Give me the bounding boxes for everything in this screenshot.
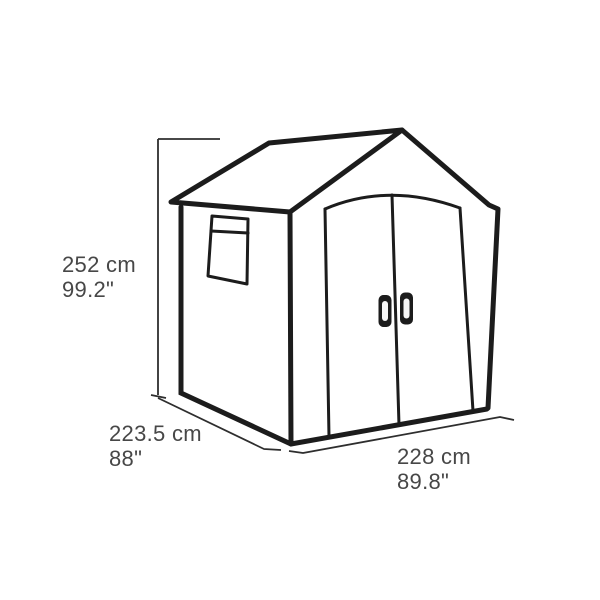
right-door-handle-icon [400,293,413,325]
width-cm-value: 228 cm [397,444,471,469]
width-dimension-label: 228 cm 89.8" [397,444,471,494]
window-divider [211,231,248,233]
window-outline [208,216,248,284]
shed-outline [171,130,498,444]
roof-plane-outline [171,130,402,212]
double-doors [325,195,473,437]
left-door-edge [325,209,329,437]
depth-cm-value: 223.5 cm [109,421,202,446]
height-cm-value: 252 cm [62,252,136,277]
depth-dimension-label: 223.5 cm 88" [109,421,202,471]
width-inches-value: 89.8" [397,469,471,494]
height-dimension-label: 252 cm 99.2" [62,252,136,302]
right-handle-slot [404,299,410,319]
gable-edge-and-right-wall [402,130,498,408]
left-door-handle-icon [379,295,392,327]
side-wall-and-base-outline [181,207,487,444]
left-handle-slot [382,301,388,321]
front-corner-post [290,212,291,444]
depth-inches-value: 88" [109,446,202,471]
product-dimension-diagram: 252 cm 99.2" 223.5 cm 88" 228 cm 89.8" [0,0,600,600]
height-inches-value: 99.2" [62,277,136,302]
door-center-split [392,195,399,425]
side-window [208,216,248,284]
right-door-edge [460,208,473,411]
